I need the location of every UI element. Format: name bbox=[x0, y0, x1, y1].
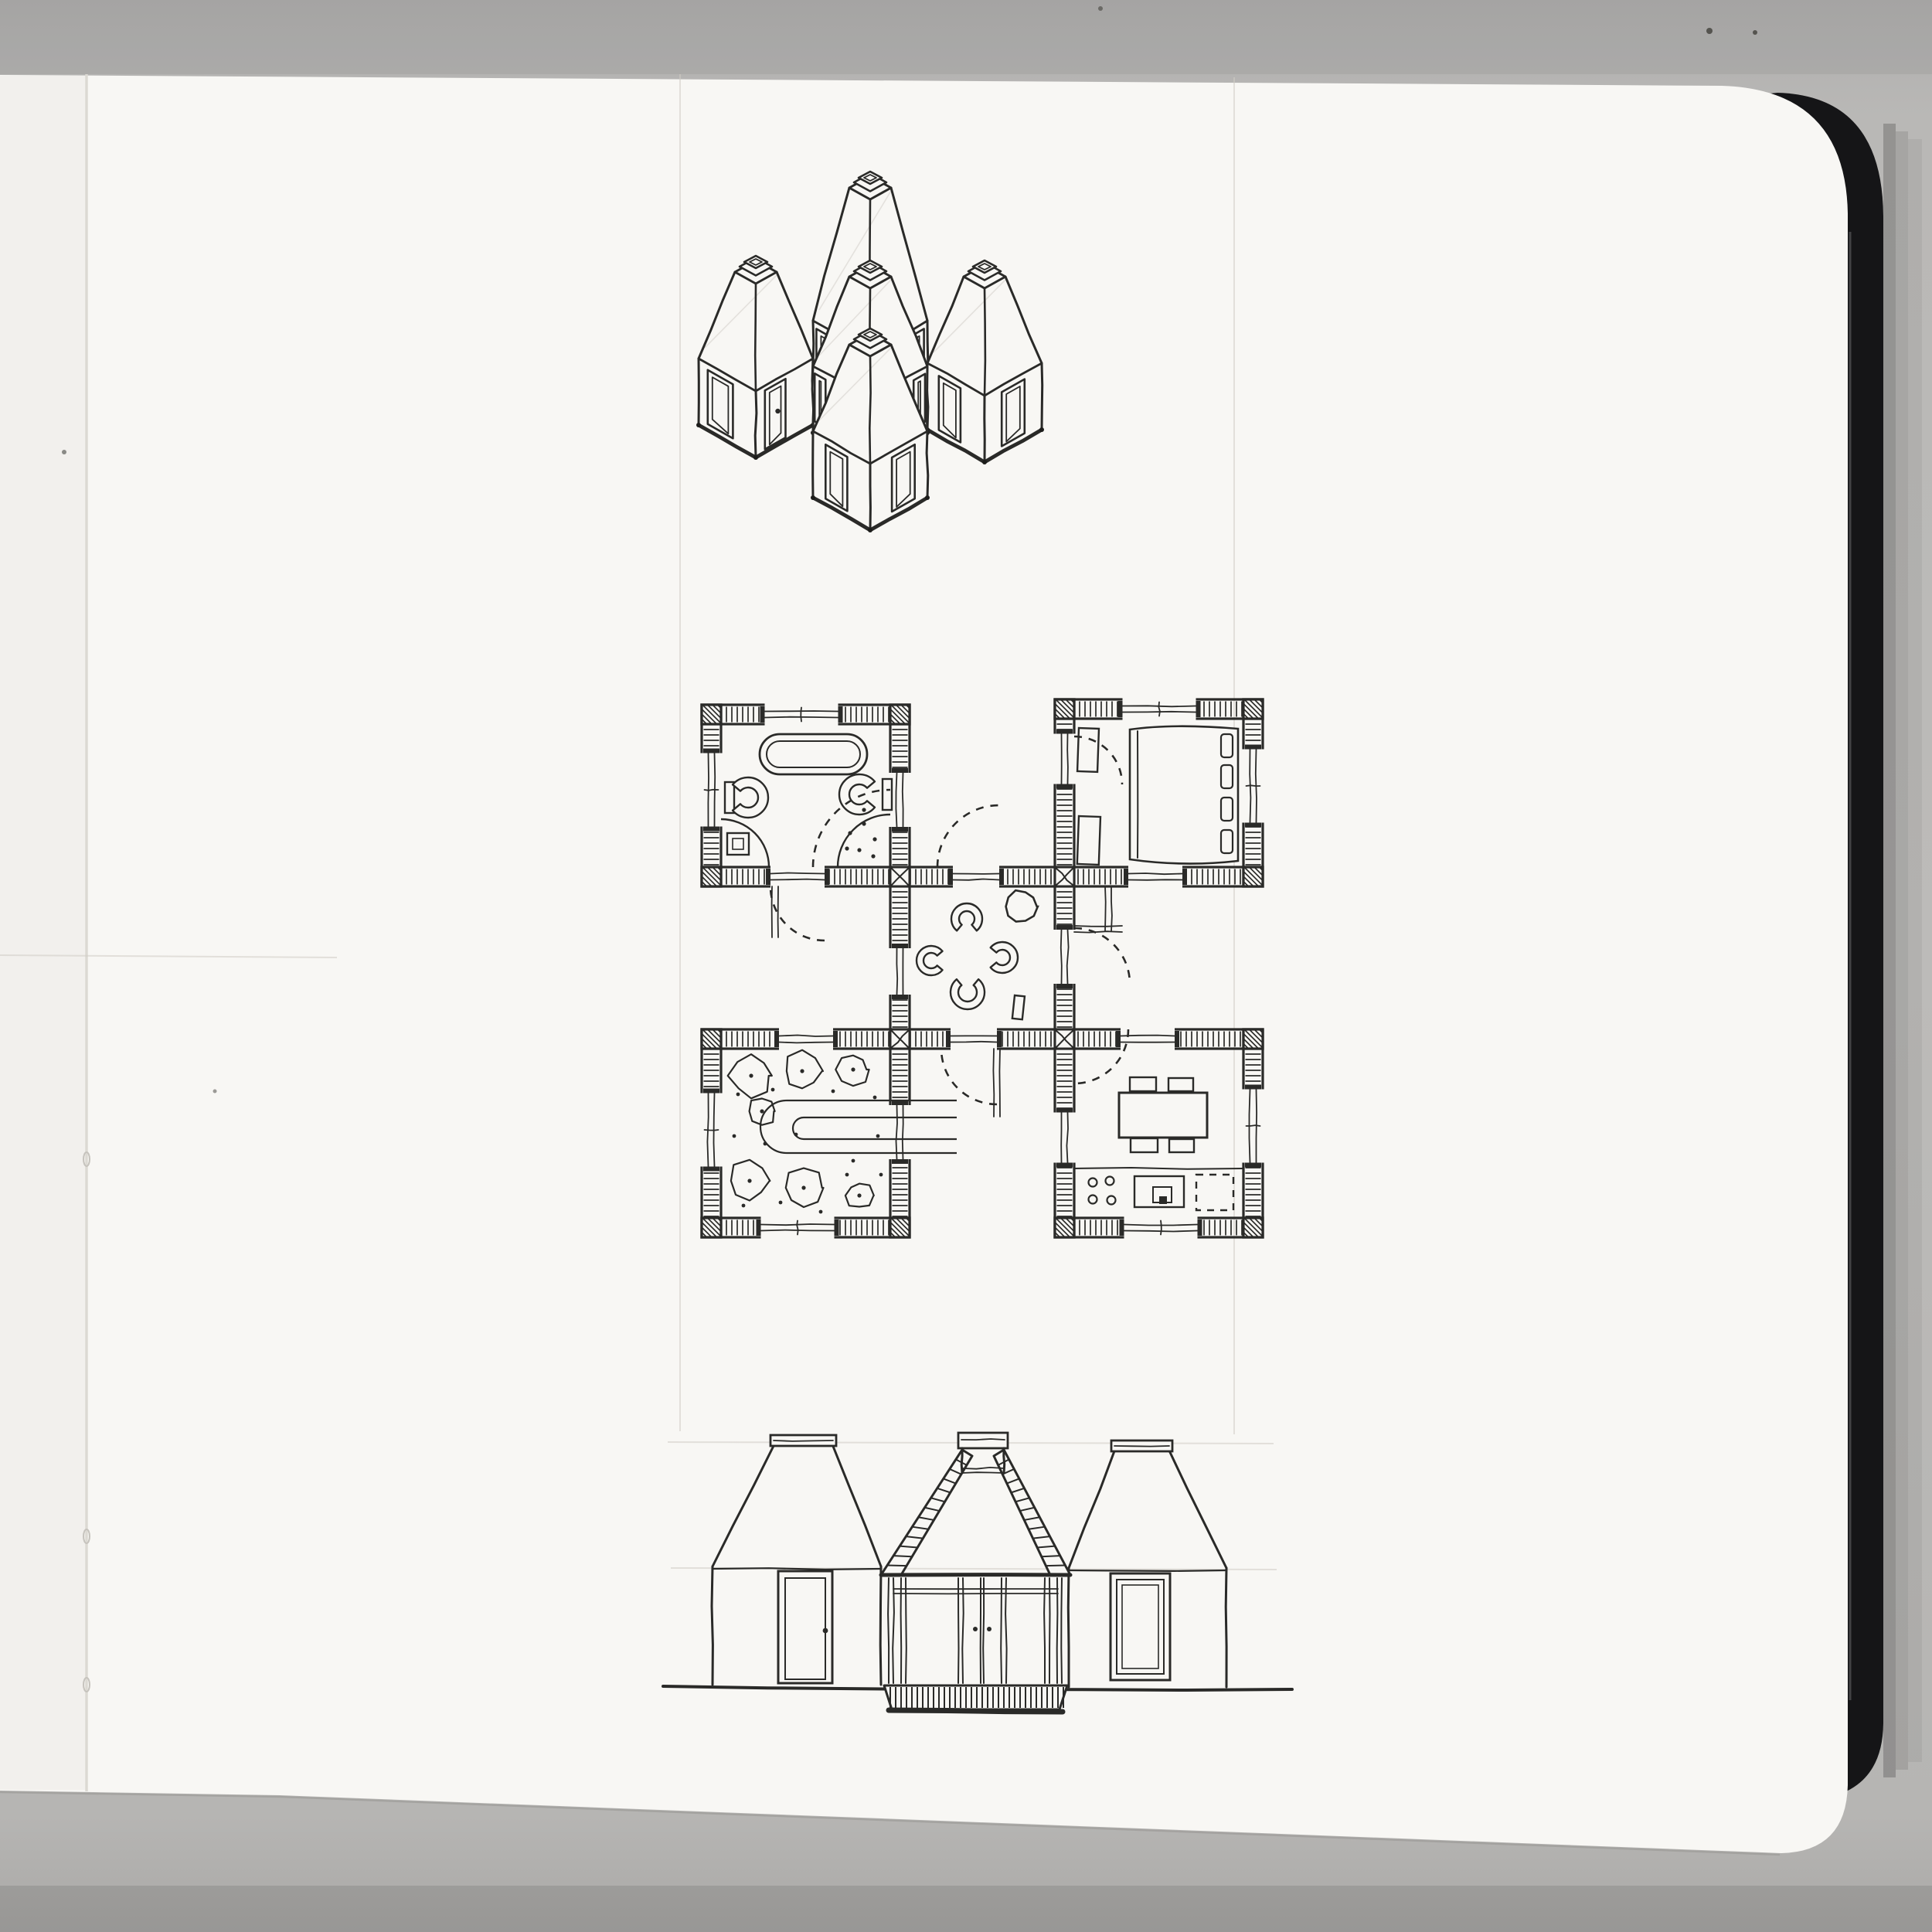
plan-corner-pier bbox=[890, 1029, 910, 1049]
plan-corner-block bbox=[1055, 699, 1074, 719]
plan-corner-block bbox=[702, 867, 721, 886]
plan-corner-pier bbox=[1055, 867, 1074, 886]
plan-opening bbox=[1118, 698, 1201, 720]
plan-opening bbox=[774, 1028, 838, 1050]
plan-opening bbox=[760, 703, 843, 726]
plan-corner-block bbox=[702, 1218, 721, 1237]
plan-corner-block bbox=[1243, 1029, 1263, 1049]
plan-corner-pier bbox=[890, 867, 910, 886]
plan-corner-block bbox=[890, 1218, 910, 1237]
plan-corner-block bbox=[702, 705, 721, 724]
plan-corner-block bbox=[1055, 1218, 1074, 1237]
plan-corner-block bbox=[890, 705, 910, 724]
plan-opening bbox=[766, 866, 829, 888]
plan-opening bbox=[889, 1100, 911, 1164]
plan-opening bbox=[1124, 866, 1187, 888]
plan-corner-pier bbox=[1055, 1029, 1074, 1049]
plan-opening bbox=[1053, 1108, 1076, 1168]
plan-opening bbox=[946, 1028, 1002, 1050]
plan-opening bbox=[948, 866, 1004, 888]
plan-opening bbox=[1053, 925, 1076, 988]
plan-corner-block bbox=[1243, 867, 1263, 886]
plan-opening bbox=[889, 944, 911, 999]
plan-corner-block bbox=[1243, 699, 1263, 719]
bush bbox=[750, 1099, 775, 1125]
plan-corner-block bbox=[702, 1029, 721, 1049]
plan-opening bbox=[757, 1216, 839, 1239]
plan-opening bbox=[1053, 730, 1076, 789]
plan-corner-block bbox=[1243, 1218, 1263, 1237]
plan-opening bbox=[700, 749, 723, 832]
plan-opening bbox=[1120, 1216, 1202, 1239]
plan-opening bbox=[700, 1089, 723, 1172]
sketchbook-svg bbox=[0, 0, 1932, 1932]
plan-opening bbox=[1242, 1085, 1264, 1168]
sketchbook-photo bbox=[0, 0, 1932, 1932]
plan-opening bbox=[1242, 745, 1264, 828]
